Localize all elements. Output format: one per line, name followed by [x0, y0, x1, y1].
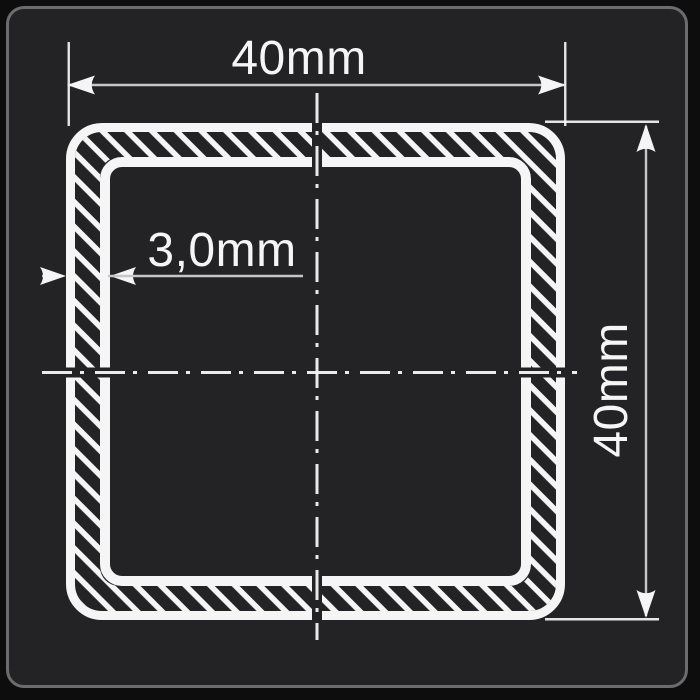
width-dimension-label: 40mm: [231, 32, 366, 85]
height-arrow-down: [637, 590, 656, 618]
width-arrow-left: [67, 76, 95, 95]
page-background: 40mm 40mm 3,0mm: [0, 0, 700, 700]
thickness-arrow-right: [40, 267, 66, 285]
height-dimension-label: 40mm: [585, 322, 638, 457]
thickness-dimension-label: 3,0mm: [147, 224, 296, 277]
width-arrow-right: [538, 76, 566, 95]
height-arrow-up: [637, 124, 656, 152]
tube-drawing: 40mm 40mm 3,0mm: [0, 0, 700, 700]
center-lines: [42, 93, 577, 642]
